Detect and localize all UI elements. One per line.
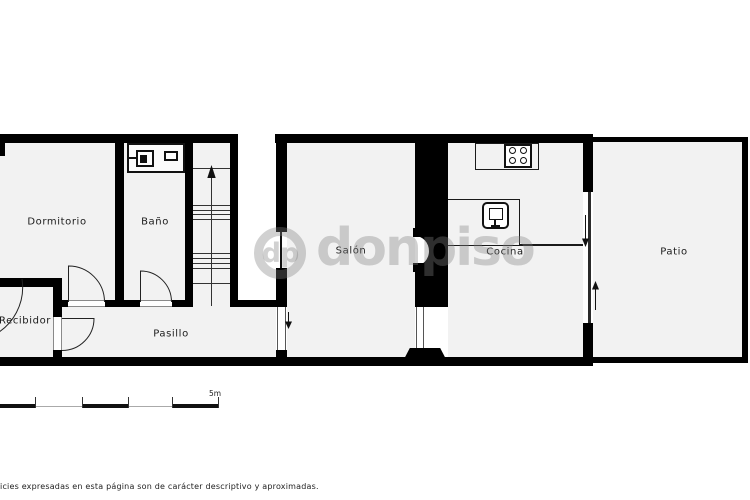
wall-patio-bottom: [593, 357, 748, 363]
bath-fixtures-box: [127, 143, 185, 173]
wall: [0, 143, 5, 156]
wall: [53, 278, 62, 317]
wall-patio-right: [742, 137, 748, 363]
wall: [0, 357, 593, 366]
door-threshold-bano: [140, 300, 172, 307]
wall: [230, 134, 238, 307]
scale-tick: [82, 397, 83, 408]
wall: [276, 350, 287, 366]
floor-plan: Dormitorio Baño Salón Cocina Patio Recib…: [0, 0, 750, 500]
burner-icon: [509, 147, 516, 154]
window-salon-pane: [280, 232, 282, 268]
wall: [583, 323, 593, 366]
room-label-cocina: Cocina: [486, 247, 523, 258]
room-label-patio: Patio: [660, 247, 688, 258]
wall-patio-top: [593, 137, 743, 142]
door-jamb: [413, 228, 425, 237]
scale-segment: [173, 404, 219, 408]
door-threshold-recibidor: [53, 317, 62, 350]
wall: [276, 268, 287, 307]
room-floor-stairwell: [193, 143, 230, 307]
sink-tap-stem: [494, 220, 496, 225]
burner-icon: [520, 157, 527, 164]
wall: [276, 134, 287, 232]
burner-icon: [520, 147, 527, 154]
door-jamb: [413, 263, 425, 272]
wall: [115, 134, 124, 307]
scale-tick: [218, 397, 219, 408]
cistern-icon: [164, 151, 178, 161]
scale-tick: [172, 397, 173, 408]
room-label-dormitorio: Dormitorio: [27, 217, 86, 228]
wall-stub-trapezoid: [402, 348, 448, 363]
scale-label: 5m: [209, 389, 221, 398]
room-label-bano: Baño: [141, 217, 169, 228]
wall: [583, 134, 593, 192]
wall: [172, 300, 193, 307]
wall: [185, 134, 193, 307]
washbasin-icon: [136, 150, 154, 167]
room-label-recibidor: Recibidor: [0, 316, 51, 327]
room-label-pasillo: Pasillo: [153, 329, 189, 340]
washbasin-bowl: [140, 155, 147, 163]
sliding-door-glass: [588, 192, 591, 323]
wall-thick-salon-cocina: [415, 137, 448, 307]
scale-tick: [35, 397, 36, 408]
kitchen-sink-icon: [482, 202, 509, 229]
disclaimer-text: ficies expresadas en esta página son de …: [0, 482, 319, 491]
door-salon-cocina-lower: [416, 307, 424, 348]
scale-segment: [83, 404, 128, 408]
stove-burners-icon: [504, 144, 532, 168]
sink-basin: [489, 208, 503, 220]
burner-icon: [509, 157, 516, 164]
scale-segment: [128, 406, 173, 407]
door-salon-entry: [277, 307, 286, 350]
scale-tick: [128, 397, 129, 408]
scale-segment: [0, 404, 35, 408]
door-threshold-dormitorio: [68, 300, 105, 307]
sink-tap-base: [491, 225, 500, 227]
washbasin-supply-line: [129, 157, 136, 159]
scale-segment: [35, 406, 83, 407]
room-label-salon: Salón: [336, 246, 367, 257]
kitchen-counter-line: [520, 244, 583, 246]
wall: [105, 300, 140, 307]
